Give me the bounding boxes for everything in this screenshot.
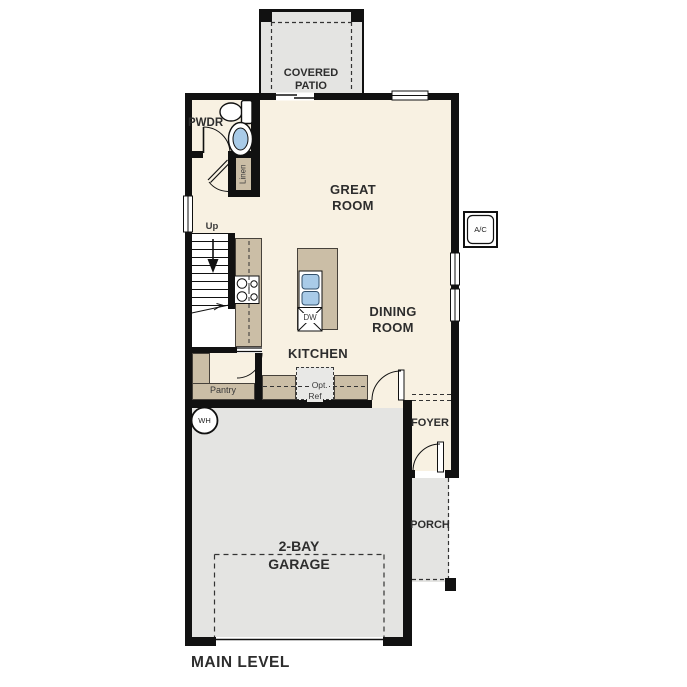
label-linen: Linen: [236, 156, 251, 192]
pantry-door: [237, 347, 262, 378]
label-wh: WH: [191, 416, 218, 425]
label-opt-ref: Opt.Ref: [295, 369, 335, 413]
window-top-wall: [392, 91, 428, 100]
label-great-room: GREATROOM: [293, 150, 413, 245]
label-covered-patio: COVEREDPATIO: [261, 40, 361, 120]
linen-door: [208, 160, 230, 192]
pwdr-door: [204, 127, 231, 154]
label-main-level: MAIN LEVEL: [191, 654, 331, 673]
front-door: [413, 442, 444, 472]
label-pwdr: PWDR: [188, 116, 230, 130]
label-dw: DW: [299, 313, 321, 323]
label-garage: 2-BAYGARAGE: [239, 503, 359, 608]
label-kitchen: KITCHEN: [268, 346, 368, 362]
window-left-wall: [184, 196, 193, 232]
hall-foyer-door: [372, 370, 404, 400]
label-foyer: FOYER: [408, 417, 452, 430]
floor-plan: COVEREDPATIO PWDR Linen Up GREATROOM DIN…: [0, 0, 687, 687]
island-sink: [299, 271, 322, 308]
cooktop: [235, 276, 260, 304]
foyer-opening-dashes: [412, 395, 451, 401]
label-pantry: Pantry: [194, 385, 252, 396]
label-porch: PORCH: [408, 519, 452, 532]
label-ac: A/C: [464, 225, 497, 234]
stairs: [192, 234, 228, 306]
label-up: Up: [201, 221, 223, 233]
stairs-up-arrow: [208, 239, 219, 273]
bathroom-sink: [229, 123, 253, 156]
